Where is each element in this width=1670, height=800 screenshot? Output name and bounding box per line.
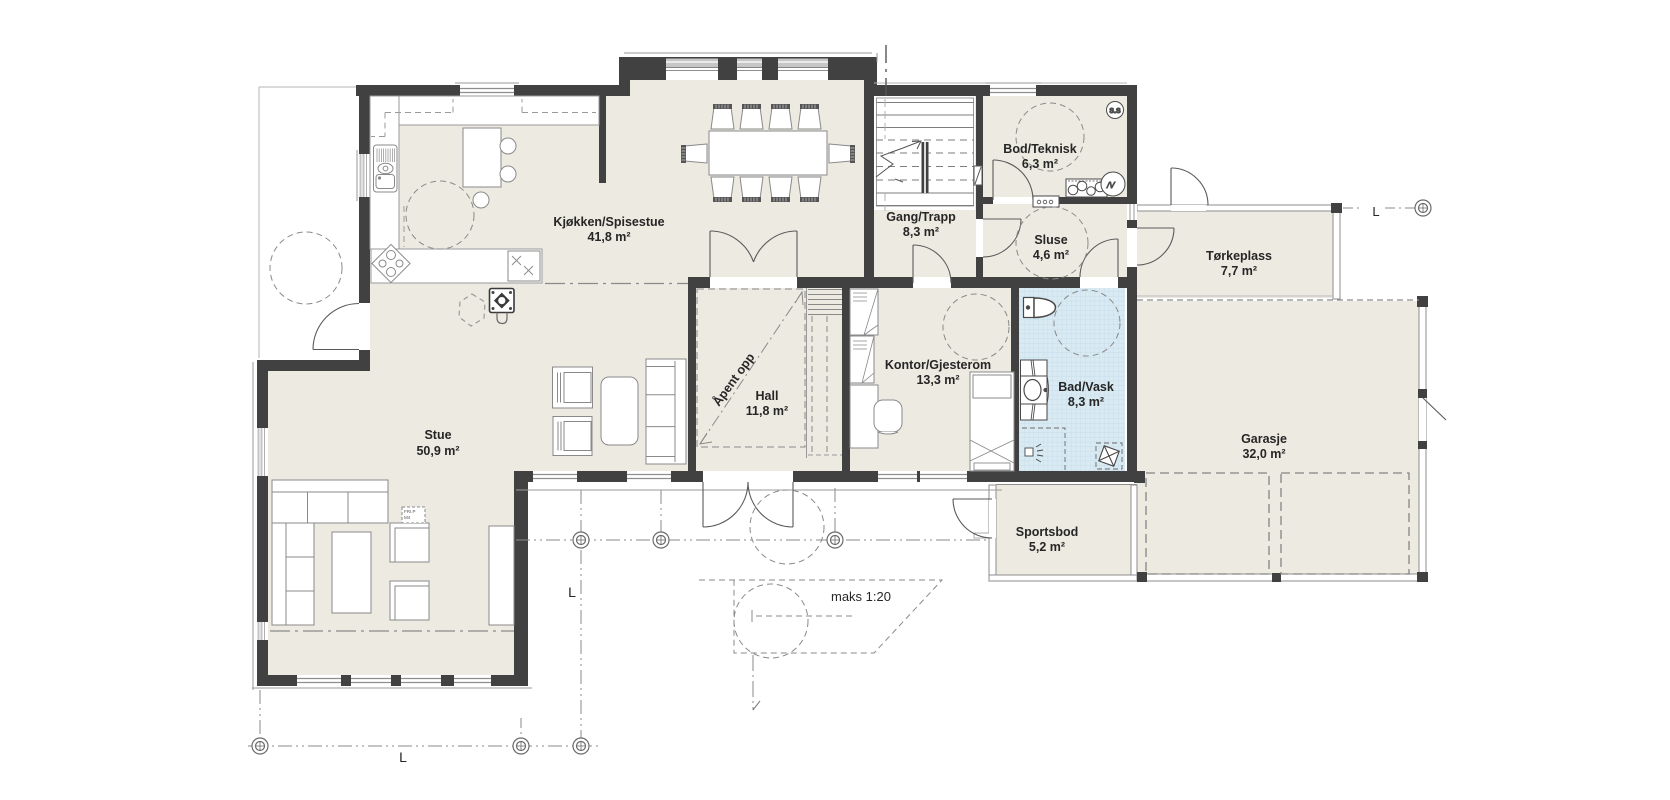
- svg-text:FRI.P: FRI.P: [404, 509, 416, 514]
- svg-text:Bod/Teknisk: Bod/Teknisk: [1003, 142, 1076, 156]
- svg-text:Sportsbod: Sportsbod: [1016, 525, 1079, 539]
- svg-text:/V: /V: [1106, 181, 1115, 190]
- svg-text:S.S: S.S: [1109, 108, 1121, 115]
- svg-text:Bad/Vask: Bad/Vask: [1058, 380, 1114, 394]
- svg-text:L: L: [1372, 204, 1379, 219]
- svg-text:32,0 m²: 32,0 m²: [1242, 447, 1285, 461]
- svg-text:Kjøkken/Spisestue: Kjøkken/Spisestue: [553, 215, 664, 229]
- svg-text:11,8 m²: 11,8 m²: [746, 404, 788, 418]
- svg-text:13,3 m²: 13,3 m²: [916, 373, 959, 387]
- svg-text:5,2 m²: 5,2 m²: [1029, 540, 1065, 554]
- svg-text:Sluse: Sluse: [1034, 233, 1067, 247]
- svg-text:L: L: [399, 749, 407, 765]
- svg-text:Garasje: Garasje: [1241, 432, 1287, 446]
- svg-text:7,7 m²: 7,7 m²: [1221, 264, 1257, 278]
- svg-text:Tørkeplass: Tørkeplass: [1206, 249, 1272, 263]
- svg-text:50,9 m²: 50,9 m²: [416, 444, 459, 458]
- svg-text:M4: M4: [404, 515, 411, 520]
- svg-text:6,3 m²: 6,3 m²: [1022, 157, 1058, 171]
- svg-text:41,8 m²: 41,8 m²: [587, 230, 630, 244]
- svg-text:8,3 m²: 8,3 m²: [903, 225, 939, 239]
- svg-text:Stue: Stue: [424, 428, 451, 442]
- svg-text:Kontor/Gjesterom: Kontor/Gjesterom: [885, 358, 991, 372]
- svg-text:maks 1:20: maks 1:20: [831, 589, 891, 604]
- svg-text:Hall: Hall: [756, 389, 779, 403]
- svg-text:Gang/Trapp: Gang/Trapp: [886, 210, 956, 224]
- svg-text:L: L: [568, 584, 576, 600]
- svg-text:4,6 m²: 4,6 m²: [1033, 248, 1069, 262]
- svg-text:8,3 m²: 8,3 m²: [1068, 395, 1104, 409]
